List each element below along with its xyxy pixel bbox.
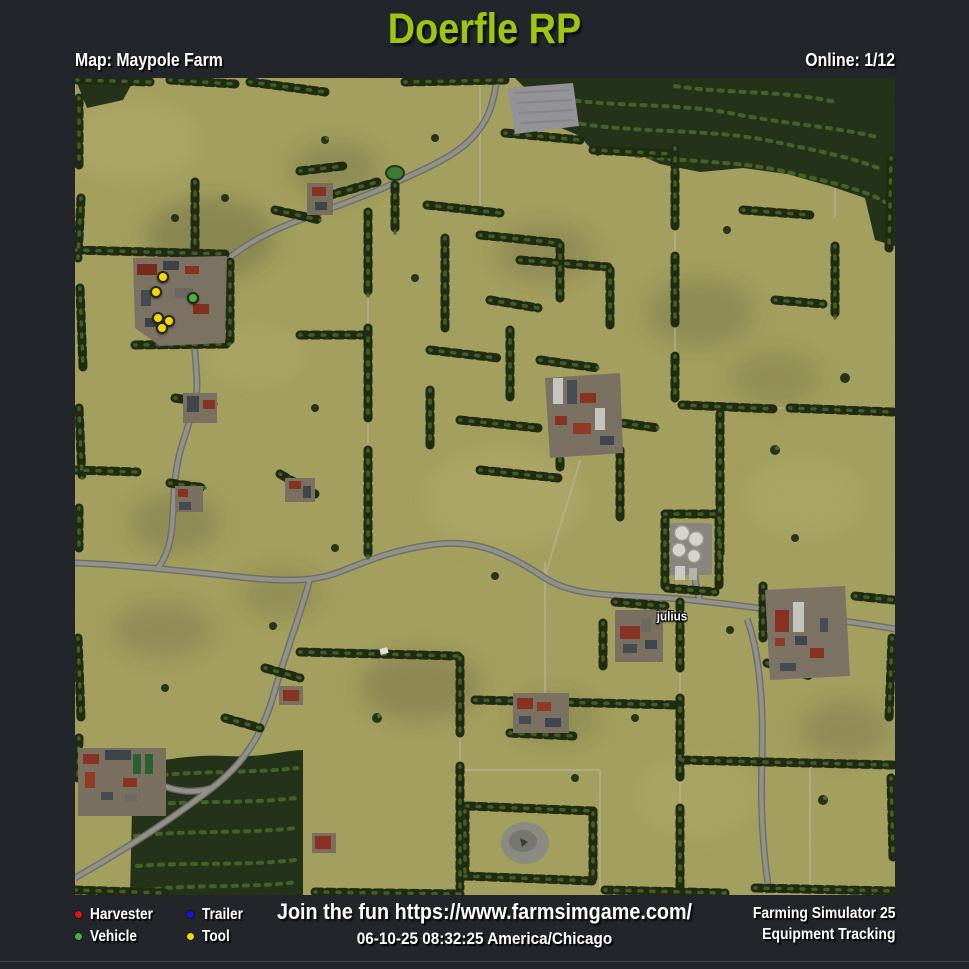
farm-map[interactable]: julius — [75, 78, 895, 895]
map-name-label: Map: Maypole Farm — [75, 50, 223, 71]
brand-title: Farming Simulator 25 — [752, 903, 895, 924]
tracking-page: Doerfle RP Map: Maypole Farm Online: 1/1… — [0, 0, 969, 969]
terrain-noise-overlay — [75, 78, 895, 895]
map-image — [75, 78, 895, 895]
bottom-divider — [0, 961, 969, 962]
brand-block: Farming Simulator 25 Equipment Tracking — [737, 903, 895, 945]
brand-subtitle: Equipment Tracking — [752, 924, 895, 945]
page-title: Doerfle RP — [58, 5, 911, 54]
online-count-label: Online: 1/12 — [805, 50, 895, 71]
